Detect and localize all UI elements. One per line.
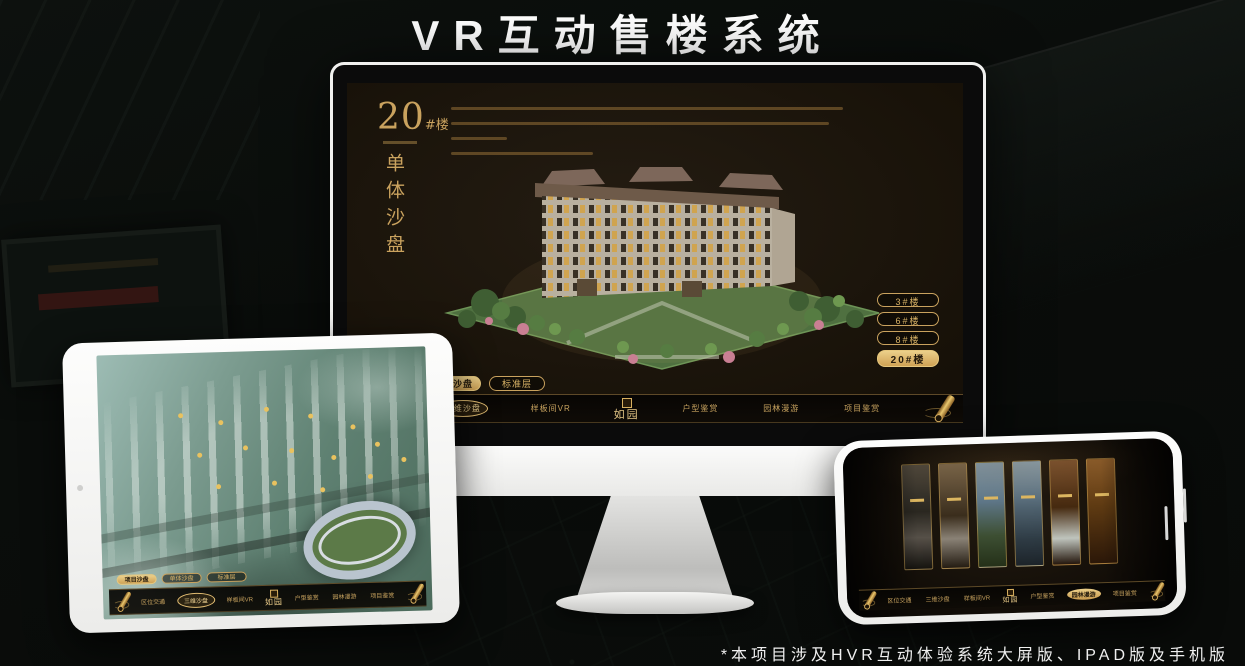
phone-screen: 区位交通 三维沙盘 样板间VR 如园 户型鉴赏 园林漫游 项目鉴赏 [842,438,1177,618]
floor-button-6[interactable]: 6#楼 [877,312,939,326]
page-title: VR互动售楼系统 [0,2,1245,63]
brand-seal-icon [622,398,632,408]
tab-standard-floor[interactable]: 标准层 [489,376,545,391]
phone-brand-name: 如园 [1002,596,1018,603]
monitor-stand-base [556,592,754,614]
floor-button-3[interactable]: 3#楼 [877,293,939,307]
tablet-nav-floorplan[interactable]: 户型鉴赏 [293,592,321,602]
tablet-nav-location-traffic[interactable]: 区位交通 [139,596,167,606]
nav-item-project-view[interactable]: 项目鉴赏 [842,403,882,414]
scroll-menu-icon[interactable] [923,396,953,422]
footnote-text: *本项目涉及HVR互动体验系统大屏版、IPAD版及手机版 [721,641,1229,665]
building-number: 20 [377,97,425,138]
tablet-screen: 项目沙盘 单体沙盘 标准层 区位交通 三维沙盘 样板间VR 如园 户型鉴赏 园林… [96,346,432,619]
building-render [427,151,897,376]
tablet-nav-showroom-vr[interactable]: 样板间VR [225,594,256,604]
nav-item-floorplan[interactable]: 户型鉴赏 [680,403,720,414]
phone-nav-floorplan[interactable]: 户型鉴赏 [1028,590,1056,600]
tablet-brand-logo[interactable]: 如园 [265,589,283,606]
phone-nav-3d-sandbox[interactable]: 三维沙盘 [923,593,951,603]
building-title-english-decor [383,141,417,144]
phone-scroll-right-icon[interactable] [1149,582,1164,600]
building-suffix: #楼 [425,118,449,133]
floor-button-20[interactable]: 20#楼 [877,350,939,367]
tablet-device: 项目沙盘 单体沙盘 标准层 区位交通 三维沙盘 样板间VR 如园 户型鉴赏 园林… [62,333,460,634]
tablet-nav-project-view[interactable]: 项目鉴赏 [368,590,396,600]
tablet-brand-name: 如园 [265,598,283,606]
tablet-scroll-left-icon[interactable] [113,592,130,612]
floor-button-group: 3#楼 6#楼 8#楼 20#楼 [877,293,939,367]
tablet-tab-single-sandbox[interactable]: 单体沙盘 [161,573,201,584]
brand-logo[interactable]: 如园 [614,398,640,420]
tablet-camera-icon [77,485,83,491]
phone-scroll-left-icon[interactable] [861,591,876,609]
phone-nav-location-traffic[interactable]: 区位交通 [885,595,913,605]
nav-item-showroom-vr[interactable]: 样板间VR [529,403,573,414]
phone-brand-logo[interactable]: 如园 [1002,588,1018,603]
tablet-tab-standard-floor[interactable]: 标准层 [206,571,246,582]
building-subtitle-vertical: 单体沙盘 [381,153,408,261]
tablet-nav-garden-roam[interactable]: 园林漫游 [330,591,358,601]
stage: VR互动售楼系统 20#楼 单体沙盘 [0,0,1245,666]
tablet-tab-project-sandbox[interactable]: 项目沙盘 [117,574,157,585]
tablet-nav-3d-sandbox[interactable]: 三维沙盘 [177,592,215,608]
phone-nav-project-view[interactable]: 项目鉴赏 [1111,587,1139,597]
tablet-scroll-right-icon[interactable] [406,584,423,604]
tablet-brand-seal-icon [270,589,278,597]
phone-side-button [1183,488,1187,522]
monitor-stand [576,496,734,600]
phone-nav-garden-roam[interactable]: 园林漫游 [1066,588,1100,600]
brand-name: 如园 [614,409,640,420]
nav-item-garden-roam[interactable]: 园林漫游 [761,403,801,414]
phone-brand-seal-icon [1007,588,1014,595]
phone-device: 区位交通 三维沙盘 样板间VR 如园 户型鉴赏 园林漫游 项目鉴赏 [833,431,1187,626]
phone-nav-showroom-vr[interactable]: 样板间VR [962,592,993,602]
building-title: 20#楼 [377,97,449,138]
floor-button-8[interactable]: 8#楼 [877,331,939,345]
